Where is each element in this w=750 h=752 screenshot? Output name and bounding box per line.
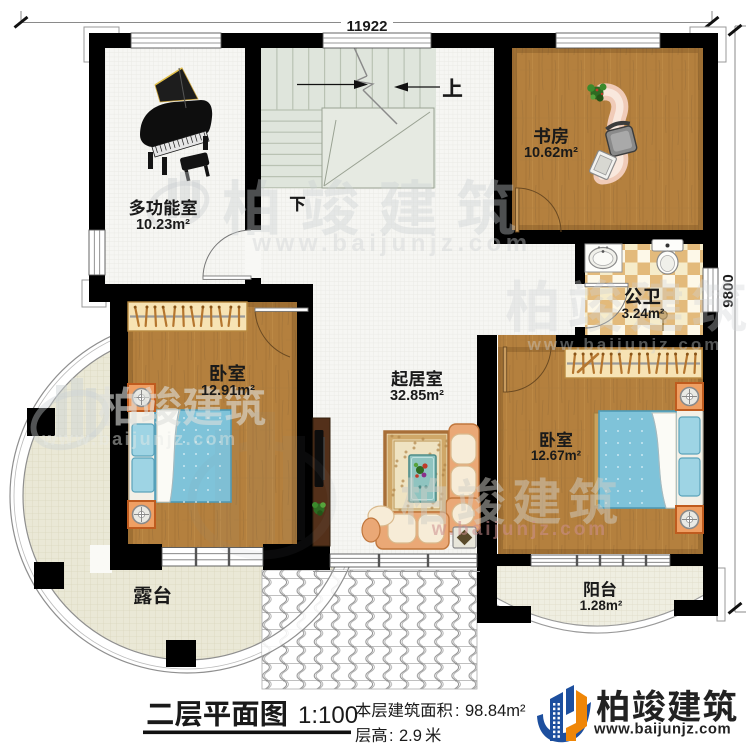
svg-text:www.baijunjz.com: www.baijunjz.com	[251, 230, 531, 257]
svg-text:1.28m²: 1.28m²	[580, 598, 623, 613]
svg-text:32.85m²: 32.85m²	[390, 388, 444, 404]
svg-text:www.baijunjz.com: www.baijunjz.com	[41, 429, 237, 449]
svg-text:10.62m²: 10.62m²	[524, 145, 578, 161]
svg-text:www.baijunjz.com: www.baijunjz.com	[527, 335, 723, 354]
svg-text::: :	[389, 727, 394, 745]
svg-text:12.67m²: 12.67m²	[531, 448, 582, 463]
svg-text:www.baijunjz.com: www.baijunjz.com	[593, 722, 731, 738]
svg-text:2.9: 2.9	[399, 727, 422, 745]
svg-text:12.91m²: 12.91m²	[201, 383, 255, 399]
svg-text:3.24m²: 3.24m²	[622, 306, 665, 321]
svg-text:10.23m²: 10.23m²	[136, 217, 190, 233]
svg-text::: :	[455, 702, 460, 720]
svg-text:w.baijunjz.com: w.baijunjz.com	[431, 519, 608, 540]
svg-text:1:100: 1:100	[298, 702, 358, 729]
svg-text:11922: 11922	[347, 18, 388, 35]
svg-text:98.84m²: 98.84m²	[465, 702, 526, 720]
